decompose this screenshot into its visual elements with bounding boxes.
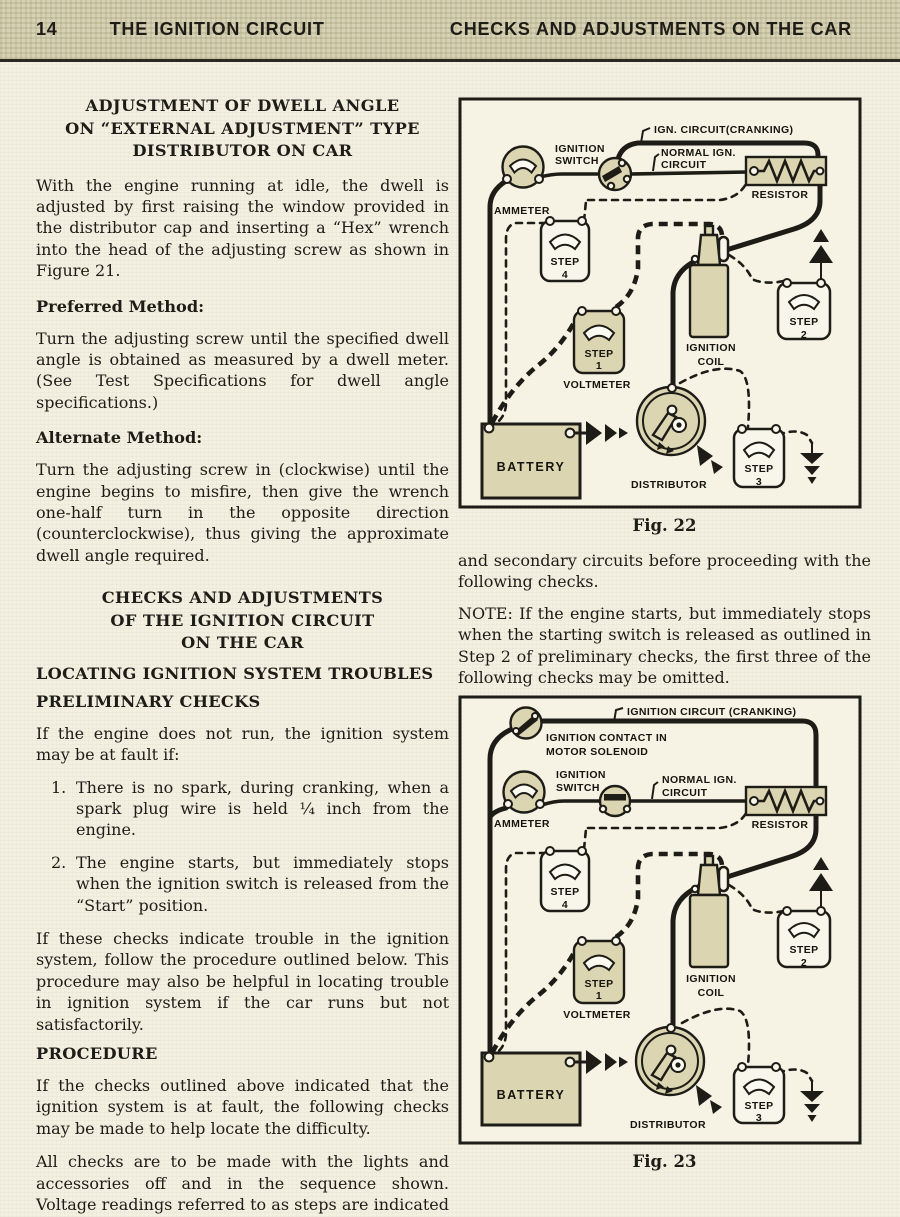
step3-meter: STEP 3 [734,1063,784,1124]
terminal [667,1024,675,1032]
item-text: The engine starts, but immediately stops… [76,852,449,916]
terminal [738,425,746,433]
terminal [600,806,606,812]
checks-heading-line1: CHECKS AND ADJUSTMENTS [36,587,449,610]
ignition-switch-label-line2: SWITCH [556,782,600,794]
terminal [608,183,614,189]
terminal [692,886,698,892]
resistor [746,157,826,185]
fig22-caption: Fig. 22 [458,516,871,535]
item-number: 2. [51,852,76,916]
normal-circuit-label: CIRCUIT [662,787,708,799]
step-label: STEP [584,348,613,360]
terminal [692,256,698,262]
battery-label: BATTERY [497,460,566,474]
ammeter-label: AMMETER [494,205,550,217]
terminal [485,424,494,433]
terminal [546,217,554,225]
coil-cap [698,235,720,265]
distributor-label: DISTRIBUTOR [631,479,707,491]
step-label: STEP [744,1100,773,1112]
resistor [746,787,826,815]
note-paragraph: NOTE: If the engine starts, but immediat… [458,603,871,689]
terminal [619,160,625,166]
normal-ign-label: NORMAL IGN. [661,147,736,159]
terminal [750,167,758,175]
terminal [817,279,825,287]
figure-22: STEP 4 STEP 2 [458,97,871,509]
coil-label-line2: COIL [698,356,725,368]
preferred-method-heading: Preferred Method: [36,297,449,316]
step4-meter: STEP 4 [541,217,589,281]
solenoid-contact [511,708,542,739]
terminal [624,806,630,812]
terminal [566,429,575,438]
terminal [817,798,824,805]
terminal [783,279,791,287]
terminal [504,800,512,808]
switch-blade-icon [604,794,626,801]
procedure-heading: PROCEDURE [36,1044,449,1063]
coil-label-line2: COIL [698,987,725,999]
step1-voltmeter: STEP 1 [574,937,624,1003]
item-text: There is no spark, during cranking, when… [76,777,449,841]
dwell-heading: ADJUSTMENT OF DWELL ANGLE ON “EXTERNAL A… [36,95,449,163]
step1-voltmeter: STEP 1 [574,307,624,373]
ignition-switch-label-line1: IGNITION [555,143,605,155]
wire-normal-circuit [630,172,748,174]
preliminary-close: If these checks indicate trouble in the … [36,928,449,1035]
voltmeter-label: VOLTMETER [563,379,631,391]
normal-circuit-label: CIRCUIT [661,159,707,171]
ignition-switch-label-line2: SWITCH [555,155,599,167]
terminal [485,1053,494,1062]
terminal [578,307,586,315]
ammeter-gauge [503,147,544,188]
step-label: STEP [789,316,818,328]
checks-heading: CHECKS AND ADJUSTMENTS OF THE IGNITION C… [36,587,449,655]
coil-tower-tip [705,226,713,235]
step-number: 4 [562,899,568,911]
page-header: 14 THE IGNITION CIRCUIT CHECKS AND ADJUS… [0,0,900,62]
solenoid-label-line1: IGNITION CONTACT IN [546,732,667,744]
ammeter-label: AMMETER [494,818,550,830]
coil-body [690,265,728,337]
page-content: ADJUSTMENT OF DWELL ANGLE ON “EXTERNAL A… [0,62,900,1217]
ammeter-gauge [504,772,545,813]
step-label: STEP [584,978,613,990]
cranking-circuit-label: IGNITION CIRCUIT (CRANKING) [627,706,796,718]
dwell-paragraph: With the engine running at idle, the dwe… [36,175,449,282]
continuation-paragraph: and secondary circuits before proceeding… [458,550,871,593]
terminal [535,175,543,183]
fig23-diagram: STEP 4 STEP 2 [458,695,862,1145]
terminal [612,937,620,945]
terminal [817,907,825,915]
coil-body [690,895,728,967]
step4-meter: STEP 4 [541,847,589,911]
battery-label: BATTERY [497,1088,566,1102]
coil-tower-tip [705,856,713,865]
step-number: 1 [596,360,602,372]
step-number: 1 [596,990,602,1002]
step-label: STEP [744,463,773,475]
dwell-heading-line2: ON “EXTERNAL ADJUSTMENT” TYPE [36,118,449,141]
terminal [513,728,519,734]
terminal [578,847,586,855]
step-number: 2 [801,329,807,341]
terminal [668,384,676,392]
terminal [566,1058,575,1067]
dwell-heading-line1: ADJUSTMENT OF DWELL ANGLE [36,95,449,118]
terminal [578,217,586,225]
terminal [612,307,620,315]
header-left-title: THE IGNITION CIRCUIT [110,19,325,40]
terminal [738,1063,746,1071]
header-right-title: CHECKS AND ADJUSTMENTS ON THE CAR [450,19,852,40]
terminal [772,1063,780,1071]
item-number: 1. [51,777,76,841]
distributor-label: DISTRIBUTOR [630,1119,706,1131]
terminal [546,847,554,855]
preferred-method-paragraph: Turn the adjusting screw until the speci… [36,328,449,414]
voltmeter-label: VOLTMETER [563,1009,631,1021]
dwell-heading-line3: DISTRIBUTOR ON CAR [36,140,449,163]
step-number: 2 [801,957,807,969]
normal-ign-label: NORMAL IGN. [662,774,737,786]
right-column: STEP 4 STEP 2 [458,95,871,1217]
step-label: STEP [550,256,579,268]
terminal [772,425,780,433]
coil-label-line1: IGNITION [686,973,736,985]
ignition-switch [600,786,630,816]
terminal [532,713,538,719]
step-number: 3 [756,1112,762,1124]
check-item-1: 1. There is no spark, during cranking, w… [36,777,449,841]
alternate-method-paragraph: Turn the adjusting screw in (clockwise) … [36,459,449,566]
checks-heading-line3: ON THE CAR [36,632,449,655]
alternate-method-heading: Alternate Method: [36,428,449,447]
procedure-paragraph-1: If the checks outlined above indicated t… [36,1075,449,1139]
manual-page: 14 THE IGNITION CIRCUIT CHECKS AND ADJUS… [0,0,900,1217]
coil-label-line1: IGNITION [686,342,736,354]
preliminary-intro: If the engine does not run, the ignition… [36,723,449,766]
step3-meter: STEP 3 [734,425,784,488]
step-label: STEP [789,944,818,956]
preliminary-heading: PRELIMINARY CHECKS [36,692,449,711]
terminal [578,937,586,945]
step-number: 3 [756,476,762,488]
ignition-switch-label-line1: IGNITION [556,769,606,781]
checks-heading-line2: OF THE IGNITION CIRCUIT [36,610,449,633]
step2-meter: STEP 2 [778,907,830,969]
check-item-2: 2. The engine starts, but immediately st… [36,852,449,916]
coil-cap [698,865,720,895]
fig22-diagram: STEP 4 STEP 2 [458,97,862,509]
fig23-caption: Fig. 23 [458,1152,871,1171]
step2-meter: STEP 2 [778,279,830,341]
figure-23: STEP 4 STEP 2 [458,695,871,1145]
terminal [783,907,791,915]
procedure-paragraph-2: All checks are to be made with the light… [36,1151,449,1217]
locating-heading: LOCATING IGNITION SYSTEM TROUBLES [36,664,449,683]
ignition-switch [599,158,631,190]
left-column: ADJUSTMENT OF DWELL ANGLE ON “EXTERNAL A… [36,95,449,1217]
terminal [503,175,511,183]
solenoid-label-line2: MOTOR SOLENOID [546,746,648,758]
terminal [750,797,758,805]
terminal [536,800,544,808]
step-number: 4 [562,269,568,281]
resistor-label: RESISTOR [752,819,809,831]
terminal [624,176,630,182]
page-number: 14 [36,19,58,40]
step-label: STEP [550,886,579,898]
resistor-label: RESISTOR [752,189,809,201]
terminal [817,168,824,175]
cranking-circuit-label: IGN. CIRCUIT(CRANKING) [654,124,793,136]
